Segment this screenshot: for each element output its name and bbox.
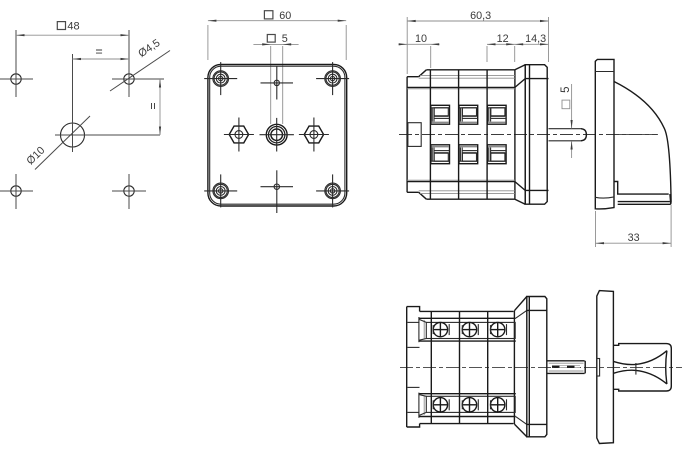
svg-text:14,3: 14,3 [525,33,546,45]
svg-text:5: 5 [560,86,572,92]
svg-text:Ø10: Ø10 [24,144,47,167]
svg-text:33: 33 [628,232,640,244]
svg-text:12: 12 [497,33,509,45]
svg-text:=: = [146,102,160,109]
svg-text:=: = [95,45,102,59]
svg-text:10: 10 [415,33,427,45]
svg-text:60: 60 [279,10,291,22]
svg-text:Ø4,5: Ø4,5 [136,37,162,60]
svg-text:48: 48 [67,20,79,32]
svg-text:60,3: 60,3 [470,10,491,22]
svg-text:5: 5 [282,33,288,45]
